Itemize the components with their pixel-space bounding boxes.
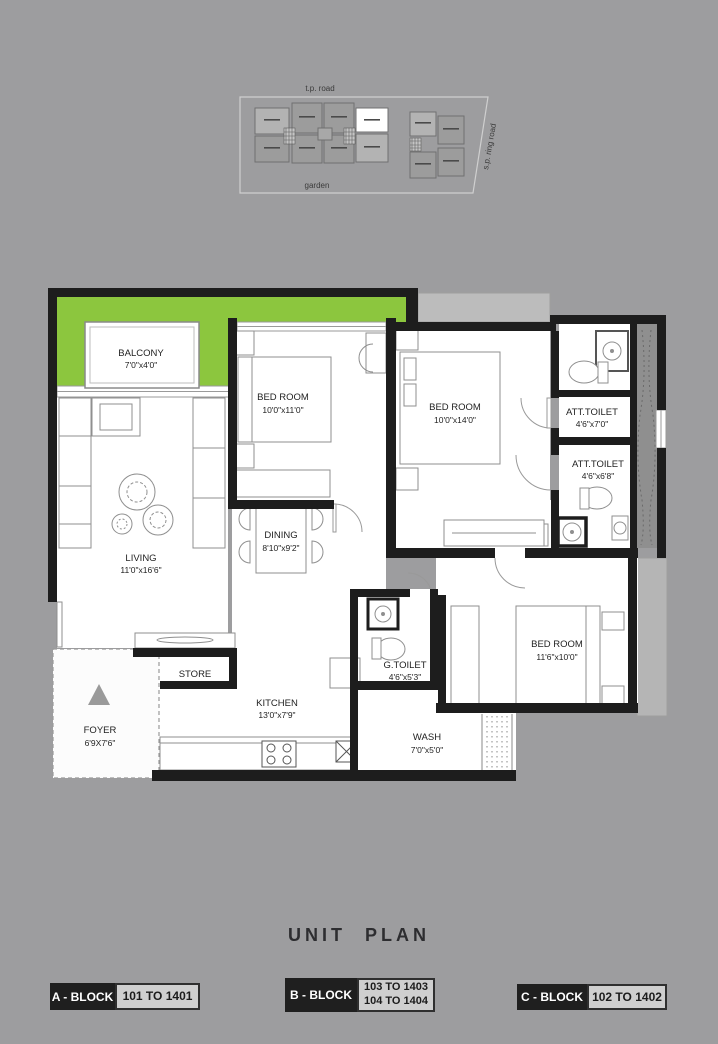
balcony-label: BALCONY bbox=[118, 348, 164, 359]
site-building-left bbox=[255, 103, 388, 163]
exterior-ledge-right bbox=[637, 558, 667, 716]
bedroom2-label: BED ROOM bbox=[429, 402, 481, 413]
entrance-door-leaf bbox=[57, 602, 62, 647]
wc-icon bbox=[569, 361, 599, 383]
foyer-area bbox=[53, 649, 159, 778]
floor-plan-page: t.p. road garden s.p. ring road bbox=[0, 0, 718, 1044]
site-stair-hatch bbox=[410, 138, 421, 151]
sofa-right bbox=[193, 398, 225, 548]
site-top-road-label: t.p. road bbox=[305, 84, 334, 93]
dining-label: DINING bbox=[264, 530, 297, 541]
site-right-road-label: s.p. ring road bbox=[481, 123, 498, 171]
bedroom3-label: BED ROOM bbox=[531, 639, 583, 650]
legend-a-block: A - BLOCK 101 TO 1401 bbox=[50, 983, 200, 1010]
stove-icon bbox=[262, 741, 296, 767]
kitchen-dims: 13'0"x7'9" bbox=[258, 710, 295, 720]
legend-c-block-name: C - BLOCK bbox=[517, 984, 587, 1010]
bedroom1-label: BED ROOM bbox=[257, 392, 309, 403]
legend-b-block-units: 103 TO 1403 104 TO 1404 bbox=[357, 978, 435, 1012]
basin-box bbox=[558, 518, 586, 546]
plan-canvas: t.p. road garden s.p. ring road bbox=[0, 0, 718, 1044]
foyer-label: FOYER bbox=[84, 725, 117, 736]
att-toilet2-label: ATT.TOILET bbox=[572, 459, 624, 470]
bedroom2-dims: 10'0"x14'0" bbox=[434, 415, 476, 425]
gtoilet-fixtures bbox=[368, 599, 405, 660]
att-toilet2-dims: 4'6"x6'8" bbox=[582, 471, 614, 481]
unit-plan: BALCONY 7'0"x4'0" BED ROOM 10'0"x11'0" B… bbox=[48, 288, 667, 781]
living-label: LIVING bbox=[125, 553, 156, 564]
page-title: UNIT PLAN bbox=[0, 925, 718, 946]
legend-c-block: C - BLOCK 102 TO 1402 bbox=[517, 984, 667, 1010]
dining-dims: 8'10"x9'2" bbox=[262, 543, 299, 553]
legend-b-units-line: 104 TO 1404 bbox=[364, 995, 428, 1009]
legend-c-block-units: 102 TO 1402 bbox=[587, 984, 667, 1010]
kitchen-label: KITCHEN bbox=[256, 698, 298, 709]
living-dims: 11'0"x16'6" bbox=[120, 565, 161, 575]
console-top bbox=[92, 398, 140, 436]
wash-dims: 7'0"x5'0" bbox=[411, 745, 443, 755]
gtoilet-dims: 4'6"x5'3" bbox=[389, 672, 421, 682]
wash-label: WASH bbox=[413, 732, 441, 743]
legend-a-block-name: A - BLOCK bbox=[50, 983, 115, 1010]
site-plan: t.p. road garden s.p. ring road bbox=[240, 84, 498, 193]
legend-b-block-name: B - BLOCK bbox=[285, 978, 357, 1012]
duct-shaft bbox=[637, 324, 657, 548]
gtoilet-label: G.TOILET bbox=[383, 660, 426, 671]
tv-console bbox=[135, 633, 235, 648]
wash-dotted-strip bbox=[482, 714, 512, 770]
legend-b-units-line: 103 TO 1403 bbox=[364, 981, 428, 995]
foyer-dims: 6'9X7'6" bbox=[85, 738, 116, 748]
sofa-left bbox=[59, 398, 91, 548]
balcony-dims: 7'0"x4'0" bbox=[125, 360, 157, 370]
legend-a-block-units: 101 TO 1401 bbox=[115, 983, 200, 1010]
bedroom1-dims: 10'0"x11'0" bbox=[262, 405, 303, 415]
site-garden-label: garden bbox=[305, 181, 330, 190]
site-building-right bbox=[410, 112, 464, 178]
att-toilet1-label: ATT.TOILET bbox=[566, 407, 618, 418]
legend-a-units-line: 101 TO 1401 bbox=[123, 989, 193, 1004]
bedroom3-dims: 11'6"x10'0" bbox=[536, 652, 577, 662]
legend-c-units-line: 102 TO 1402 bbox=[592, 990, 662, 1005]
att-toilet1-dims: 4'6"x7'0" bbox=[576, 419, 608, 429]
store-label: STORE bbox=[179, 669, 212, 680]
exterior-ledge-top bbox=[418, 293, 550, 322]
legend-b-block: B - BLOCK 103 TO 1403 104 TO 1404 bbox=[285, 978, 435, 1012]
